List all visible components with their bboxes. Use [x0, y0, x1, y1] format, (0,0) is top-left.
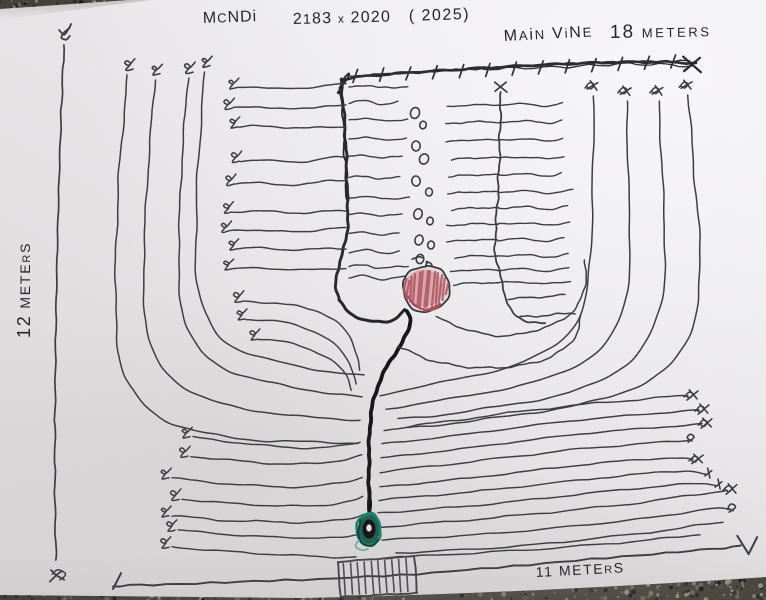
- svg-text:MCNDi: MCNDi: [203, 8, 258, 27]
- svg-text:( 2025): ( 2025): [409, 6, 471, 25]
- svg-text:2183 x 2020: 2183 x 2020: [293, 8, 392, 28]
